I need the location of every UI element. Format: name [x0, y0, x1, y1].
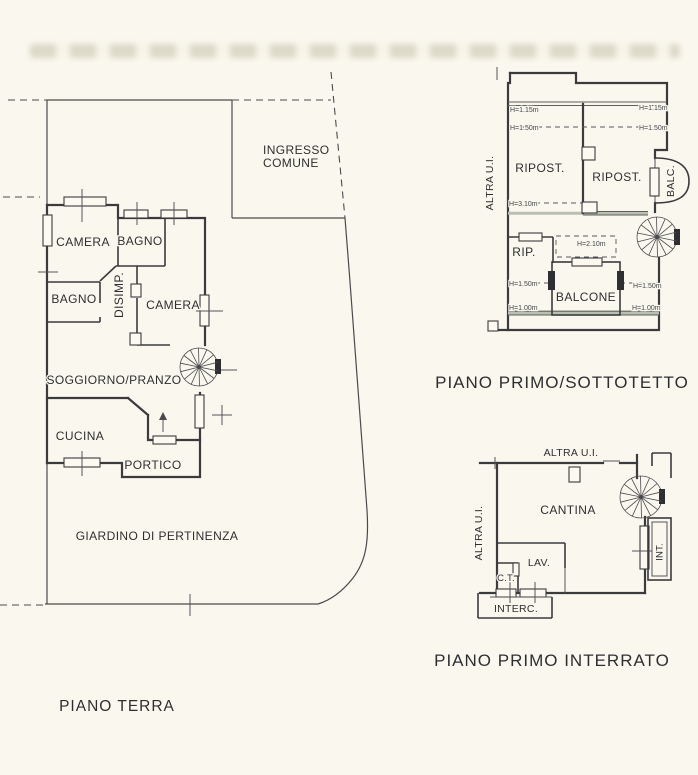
label-cucina: CUCINA: [56, 429, 104, 443]
wall-end-box: [488, 321, 498, 331]
label-h150-top-right: H=1.50m: [639, 125, 668, 132]
first-floor-title: PIANO PRIMO/SOTTOTETTO: [435, 373, 689, 392]
label-h100-left: H=1.00m: [509, 305, 538, 312]
floorplan-page: CAMERA BAGNO BAGNO CAMERA DISIMP. SOGGIO…: [0, 0, 698, 775]
door-jamb: [131, 284, 141, 297]
label-h115-left: H=1.15m: [510, 107, 539, 114]
label-altra-ui-side: ALTRA U.I.: [473, 506, 485, 561]
label-h310: H=3.10m: [509, 201, 538, 208]
label-ingresso-line1: INGRESSO: [263, 143, 330, 157]
door-arrow: [159, 412, 167, 432]
label-portico: PORTICO: [124, 458, 181, 472]
label-lav: LAV.: [528, 557, 550, 569]
flue-box: [582, 147, 595, 160]
label-balcone: BALCONE: [556, 290, 616, 304]
label-rip: RIP.: [512, 245, 535, 259]
window-symbol: [496, 589, 516, 597]
spiral-staircase-first: [637, 217, 680, 257]
window-symbol: [64, 197, 106, 206]
door-symbol: [572, 258, 602, 266]
flue-box: [582, 202, 597, 213]
label-h100-right: H=1.00m: [632, 305, 661, 312]
label-h210: H=2.10m: [577, 241, 606, 248]
label-giardino: GIARDINO DI PERTINENZA: [76, 529, 239, 543]
label-camera-2: CAMERA: [146, 298, 200, 312]
spiral-staircase-basement: [620, 476, 665, 518]
label-h150-mid-left: H=1.50m: [509, 281, 538, 288]
label-soggiorno-pranzo: SOGGIORNO/PRANZO: [46, 373, 181, 387]
label-ct: C.T.: [497, 573, 515, 584]
window-symbol: [195, 395, 204, 428]
ground-floor-title: PIANO TERRA: [59, 698, 175, 715]
basement-plan: ALTRA U.I. ALTRA U.I. CANTINA LAV. C.T. …: [434, 447, 671, 670]
spiral-staircase-ground: [180, 348, 221, 386]
basement-labels: ALTRA U.I. ALTRA U.I. CANTINA LAV. C.T. …: [434, 447, 670, 670]
label-ripost-1: RIPOST.: [515, 161, 564, 175]
window-symbol: [43, 215, 52, 246]
label-altra-ui-first: ALTRA U.I.: [484, 156, 496, 211]
label-int: INT.: [655, 543, 666, 561]
label-bagno-1: BAGNO: [117, 234, 162, 248]
window-symbol: [153, 436, 176, 444]
label-cantina: CANTINA: [540, 503, 595, 517]
label-h150-mid-right: H=1.50m: [633, 283, 662, 290]
window-symbol: [520, 589, 546, 597]
window-symbol: [519, 233, 542, 241]
ground-floor-plan: CAMERA BAGNO BAGNO CAMERA DISIMP. SOGGIO…: [0, 72, 368, 715]
label-ripost-2: RIPOST.: [592, 170, 641, 184]
ground-floor-labels: CAMERA BAGNO BAGNO CAMERA DISIMP. SOGGIO…: [46, 143, 329, 715]
label-ingresso-line2: COMUNE: [263, 156, 319, 170]
first-floor-labels: H=1.15m H=1.15m H=1.50m H=1.50m H=3.10m …: [435, 105, 689, 392]
label-disimpegno: DISIMP.: [112, 272, 126, 318]
window-symbol: [124, 210, 148, 218]
label-altra-ui-top: ALTRA U.I.: [544, 447, 599, 459]
label-balc: BALC.: [665, 165, 677, 197]
first-floor-plan: H=1.15m H=1.15m H=1.50m H=1.50m H=3.10m …: [435, 67, 689, 392]
label-camera-1: CAMERA: [56, 235, 110, 249]
main-balcony: [548, 258, 624, 315]
label-bagno-2: BAGNO: [51, 292, 96, 306]
window-symbol: [650, 168, 659, 196]
floorplan-svg: CAMERA BAGNO BAGNO CAMERA DISIMP. SOGGIO…: [0, 0, 698, 775]
label-h115-right: H=1.15m: [639, 105, 668, 112]
wall-box: [569, 467, 580, 482]
basement-title: PIANO PRIMO INTERRATO: [434, 651, 670, 670]
door-jamb: [130, 333, 141, 345]
label-interc: INTERC.: [494, 603, 538, 615]
label-h150-top-left: H=1.50m: [510, 125, 539, 132]
